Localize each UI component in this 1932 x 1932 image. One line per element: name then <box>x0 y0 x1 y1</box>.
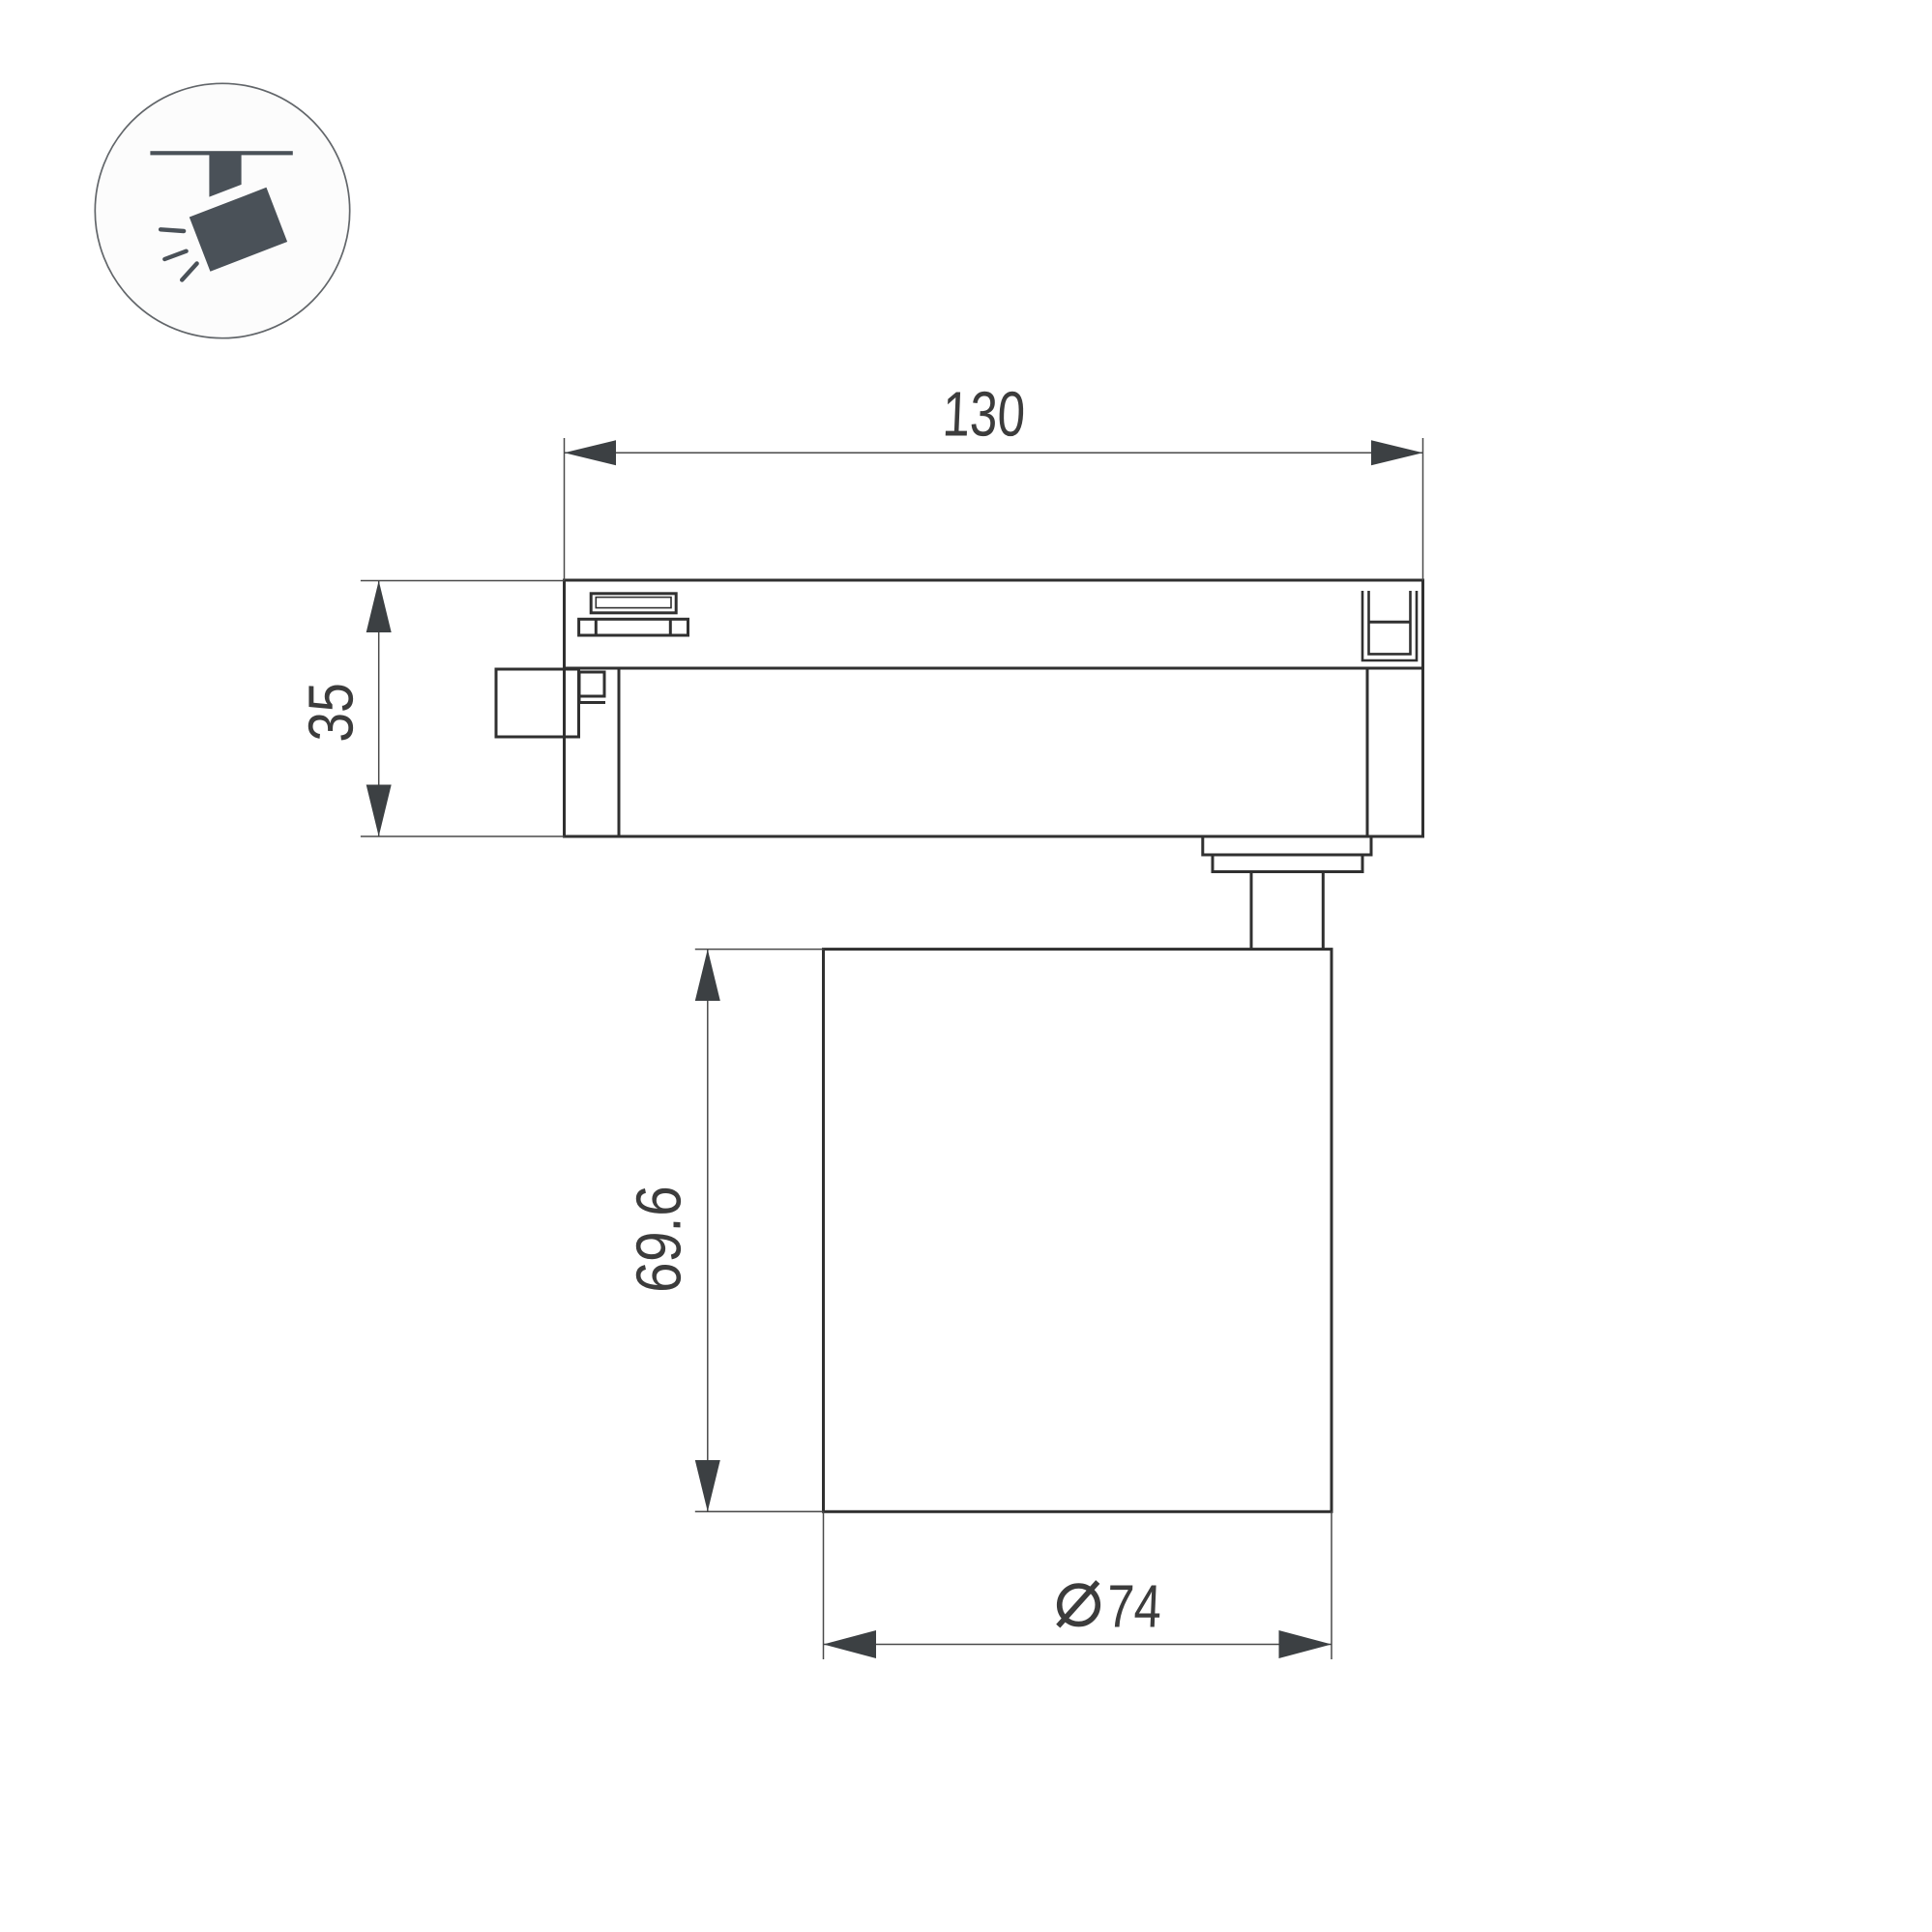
svg-text:69.6: 69.6 <box>624 1184 695 1294</box>
svg-text:130: 130 <box>941 380 1026 450</box>
svg-text:35: 35 <box>295 681 366 743</box>
svg-text:74: 74 <box>1105 1572 1162 1640</box>
